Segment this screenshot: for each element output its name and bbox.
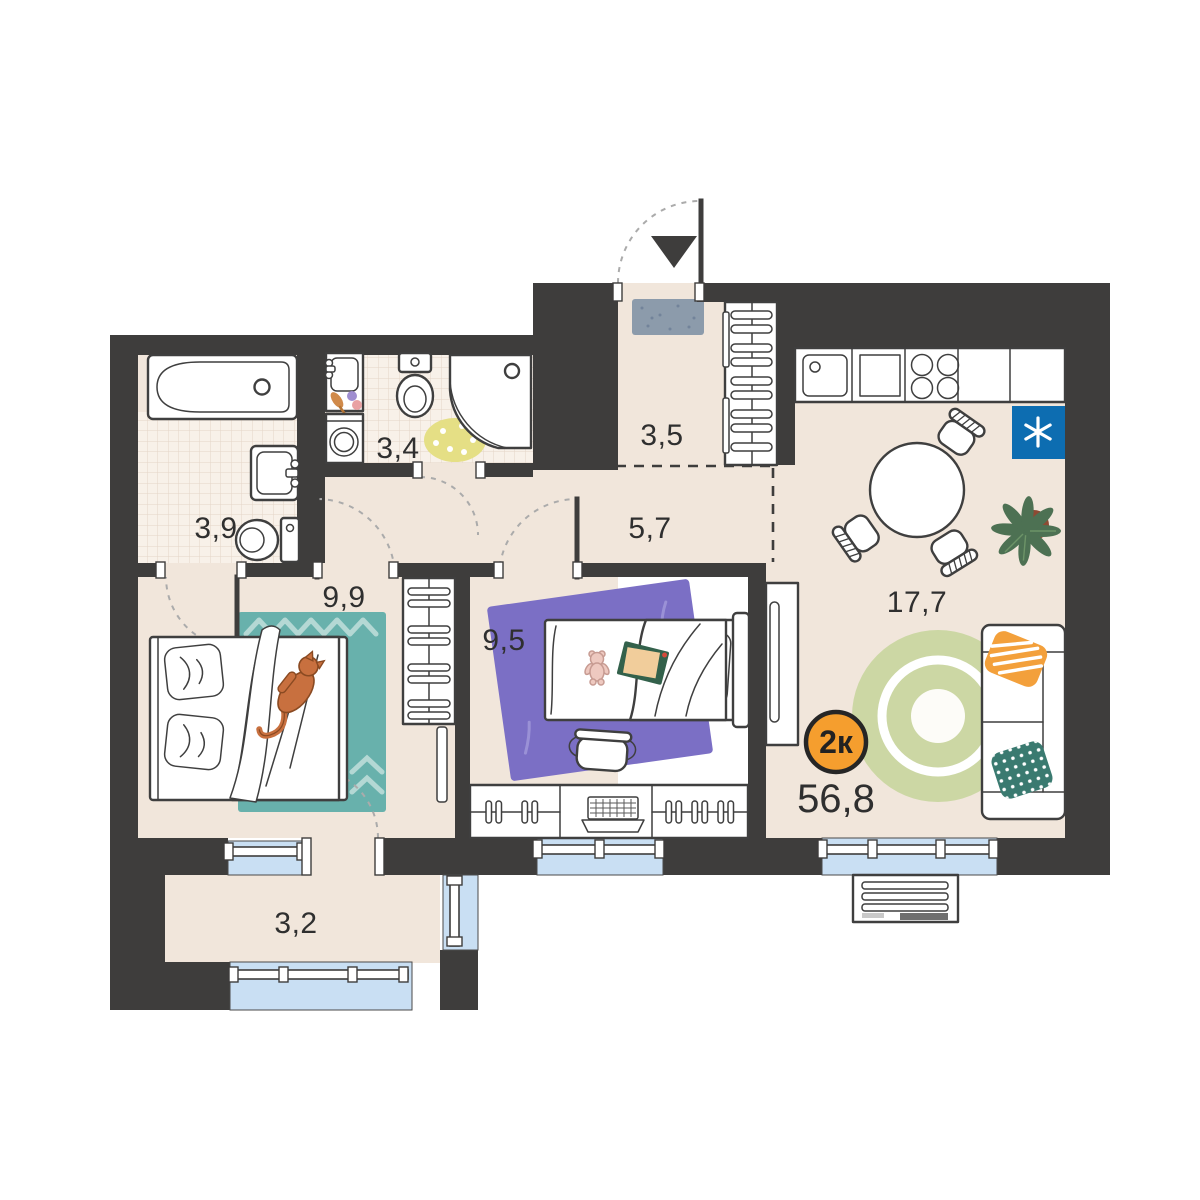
label-wc: 3,4 bbox=[376, 432, 419, 465]
pillow bbox=[163, 643, 224, 701]
balcony-side-window bbox=[443, 875, 478, 950]
double-bed bbox=[150, 626, 347, 802]
air-conditioner bbox=[853, 875, 958, 922]
badge-type: 2к bbox=[819, 724, 854, 760]
tv bbox=[770, 602, 779, 722]
wc-toilet bbox=[397, 353, 433, 417]
bathroom-toilet bbox=[236, 518, 299, 562]
bathtub bbox=[148, 355, 297, 419]
kids-room-window bbox=[533, 838, 664, 875]
hangers bbox=[731, 311, 772, 451]
kitchen-sink bbox=[803, 355, 847, 396]
entrance-arrow-icon bbox=[651, 236, 697, 268]
laptop bbox=[582, 797, 644, 832]
pillow bbox=[163, 713, 224, 771]
kitchen-counter bbox=[795, 348, 1065, 402]
tv-stand bbox=[766, 583, 798, 745]
balcony-window bbox=[229, 962, 412, 1010]
total-area: 56,8 bbox=[797, 777, 875, 821]
label-balcony: 3,2 bbox=[274, 907, 317, 940]
doormat bbox=[632, 299, 704, 335]
label-bathroom: 3,9 bbox=[194, 512, 237, 545]
bathroom-sink bbox=[251, 446, 299, 500]
desk bbox=[470, 785, 748, 838]
hall-wardrobe bbox=[723, 302, 777, 465]
floor-plan: 3,9 3,4 3,5 5,7 9,9 9,5 17,7 3,2 2к 56,8 bbox=[0, 0, 1200, 1200]
headboard bbox=[733, 613, 749, 727]
label-bedroom: 9,9 bbox=[322, 581, 365, 614]
label-hallway: 3,5 bbox=[640, 419, 683, 452]
wardrobe-door bbox=[437, 727, 447, 802]
kids-bed bbox=[545, 613, 749, 727]
wc-washbasin bbox=[326, 353, 364, 414]
fridge bbox=[1012, 406, 1065, 459]
sofa bbox=[982, 625, 1065, 819]
label-corridor: 5,7 bbox=[628, 512, 671, 545]
oven bbox=[860, 355, 900, 396]
washing-machine bbox=[326, 414, 363, 463]
bedroom-window bbox=[224, 841, 306, 875]
floor-plan-page: 3,9 3,4 3,5 5,7 9,9 9,5 17,7 3,2 2к 56,8 bbox=[0, 0, 1200, 1200]
label-kitchen-living: 17,7 bbox=[887, 586, 947, 619]
label-kids-room: 9,5 bbox=[482, 624, 525, 657]
dining-table bbox=[870, 443, 964, 537]
living-room-window bbox=[818, 838, 998, 875]
